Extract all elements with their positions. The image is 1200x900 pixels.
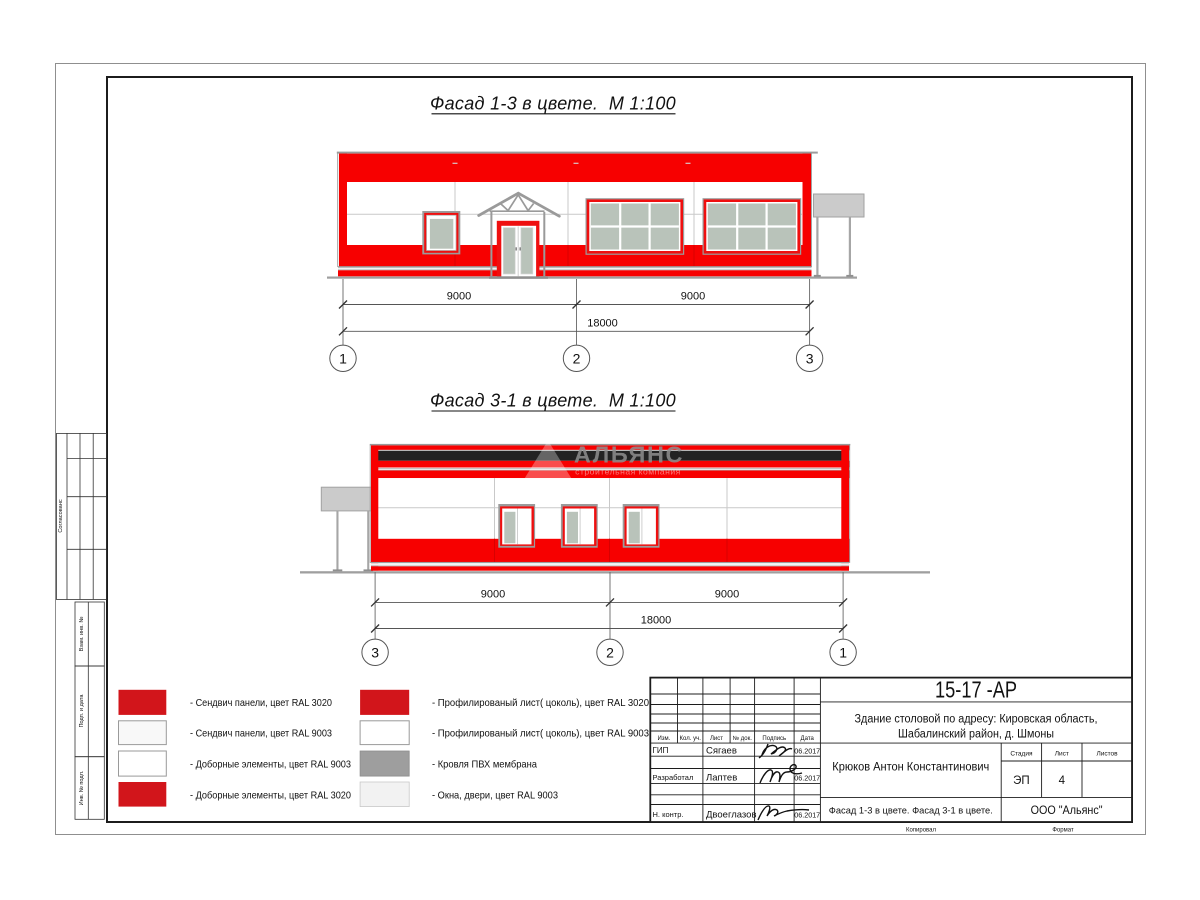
svg-text:2: 2 [606,644,614,660]
svg-text:№ док.: № док. [733,735,753,742]
svg-text:9000: 9000 [447,291,471,303]
svg-text:06.2017: 06.2017 [794,747,820,756]
svg-text:Кол. уч.: Кол. уч. [680,736,702,742]
svg-text:- Доборные элементы, цвет RAL: - Доборные элементы, цвет RAL 9003 [190,759,351,771]
svg-text:9000: 9000 [681,291,705,303]
svg-text:15-17 -АР: 15-17 -АР [935,677,1017,703]
svg-text:Фасад 1-3 в цвете. Фасад 3-1 в: Фасад 1-3 в цвете. Фасад 3-1 в цвете. [829,806,993,817]
svg-text:9000: 9000 [715,588,739,600]
svg-text:Взам. инв. №: Взам. инв. № [79,617,85,652]
svg-text:Двоеглазов: Двоеглазов [706,810,757,821]
svg-text:Разработал: Разработал [653,773,694,782]
svg-text:3: 3 [806,350,814,366]
svg-text:Формат: Формат [1052,828,1074,834]
svg-text:Подп. и дата: Подп. и дата [79,694,85,728]
svg-text:1: 1 [839,644,847,660]
svg-text:Фасад 3-1 в цвете. М 1:100: Фасад 3-1 в цвете. М 1:100 [430,391,676,411]
svg-text:Здание столовой по адресу: Кир: Здание столовой по адресу: Кировская обл… [855,714,1098,726]
svg-text:- Сендвич панели, цвет RAL 302: - Сендвич панели, цвет RAL 3020 [190,697,332,709]
svg-text:Лист: Лист [710,736,723,742]
svg-text:Дата: Дата [801,736,815,742]
svg-text:Стадия: Стадия [1010,751,1033,758]
svg-text:4: 4 [1059,775,1066,787]
svg-text:- Доборные элементы, цвет RAL: - Доборные элементы, цвет RAL 3020 [190,789,351,801]
svg-text:9000: 9000 [481,588,505,600]
svg-text:Изм.: Изм. [657,736,670,742]
svg-text:ООО "Альянс": ООО "Альянс" [1031,805,1103,817]
svg-text:18000: 18000 [641,615,672,627]
svg-text:- Окна, двери, цвет RAL 9003: - Окна, двери, цвет RAL 9003 [432,789,558,801]
svg-text:1: 1 [339,350,347,366]
svg-text:- Кровля ПВХ мембрана: - Кровля ПВХ мембрана [432,759,537,771]
svg-text:Копировал: Копировал [906,828,937,834]
svg-text:Шабалинский район, д. Шмоны: Шабалинский район, д. Шмоны [898,729,1054,741]
svg-text:- Профилированый лист( цоколь): - Профилированый лист( цоколь), цвет RAL… [432,697,649,709]
svg-text:Фасад 1-3 в цвете. М 1:100: Фасад 1-3 в цвете. М 1:100 [430,94,676,114]
svg-text:2: 2 [573,350,581,366]
svg-text:строительная компания: строительная компания [575,467,681,477]
svg-text:АЛЬЯНС: АЛЬЯНС [574,441,684,467]
svg-text:- Сендвич панели, цвет RAL 900: - Сендвич панели, цвет RAL 9003 [190,728,332,740]
svg-text:Инв. № подл.: Инв. № подл. [79,770,85,805]
svg-text:Лист: Лист [1055,751,1069,758]
svg-text:Н. контр.: Н. контр. [653,810,684,819]
svg-text:ЭП: ЭП [1013,775,1030,787]
svg-text:3: 3 [371,644,379,660]
svg-text:Листов: Листов [1096,751,1118,758]
svg-text:- Профилированый лист( цоколь): - Профилированый лист( цоколь), цвет RAL… [432,728,649,740]
svg-text:ГИП: ГИП [653,746,669,755]
svg-text:Подпись: Подпись [762,736,786,742]
svg-text:Сягаев: Сягаев [706,746,737,757]
svg-text:Лаптев: Лаптев [706,773,737,784]
svg-text:Крюков Антон Константинович: Крюков Антон Константинович [832,762,989,774]
svg-text:06.2017: 06.2017 [794,811,820,820]
svg-text:18000: 18000 [587,317,618,329]
svg-text:Согласованс: Согласованс [58,499,64,533]
svg-text:06.2017: 06.2017 [794,774,820,783]
